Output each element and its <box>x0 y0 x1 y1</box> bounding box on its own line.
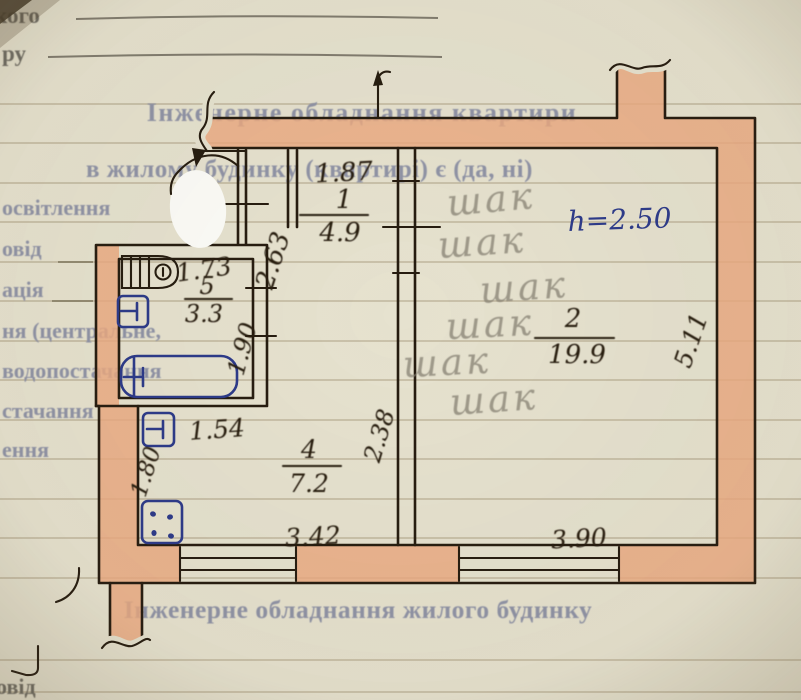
floor-plan-document: кого ру Інженерне обладнання квартири в … <box>0 0 801 700</box>
scanned-floor-plan-page: кого ру Інженерне обладнання квартири в … <box>0 0 801 700</box>
photo-vignette <box>0 0 801 700</box>
